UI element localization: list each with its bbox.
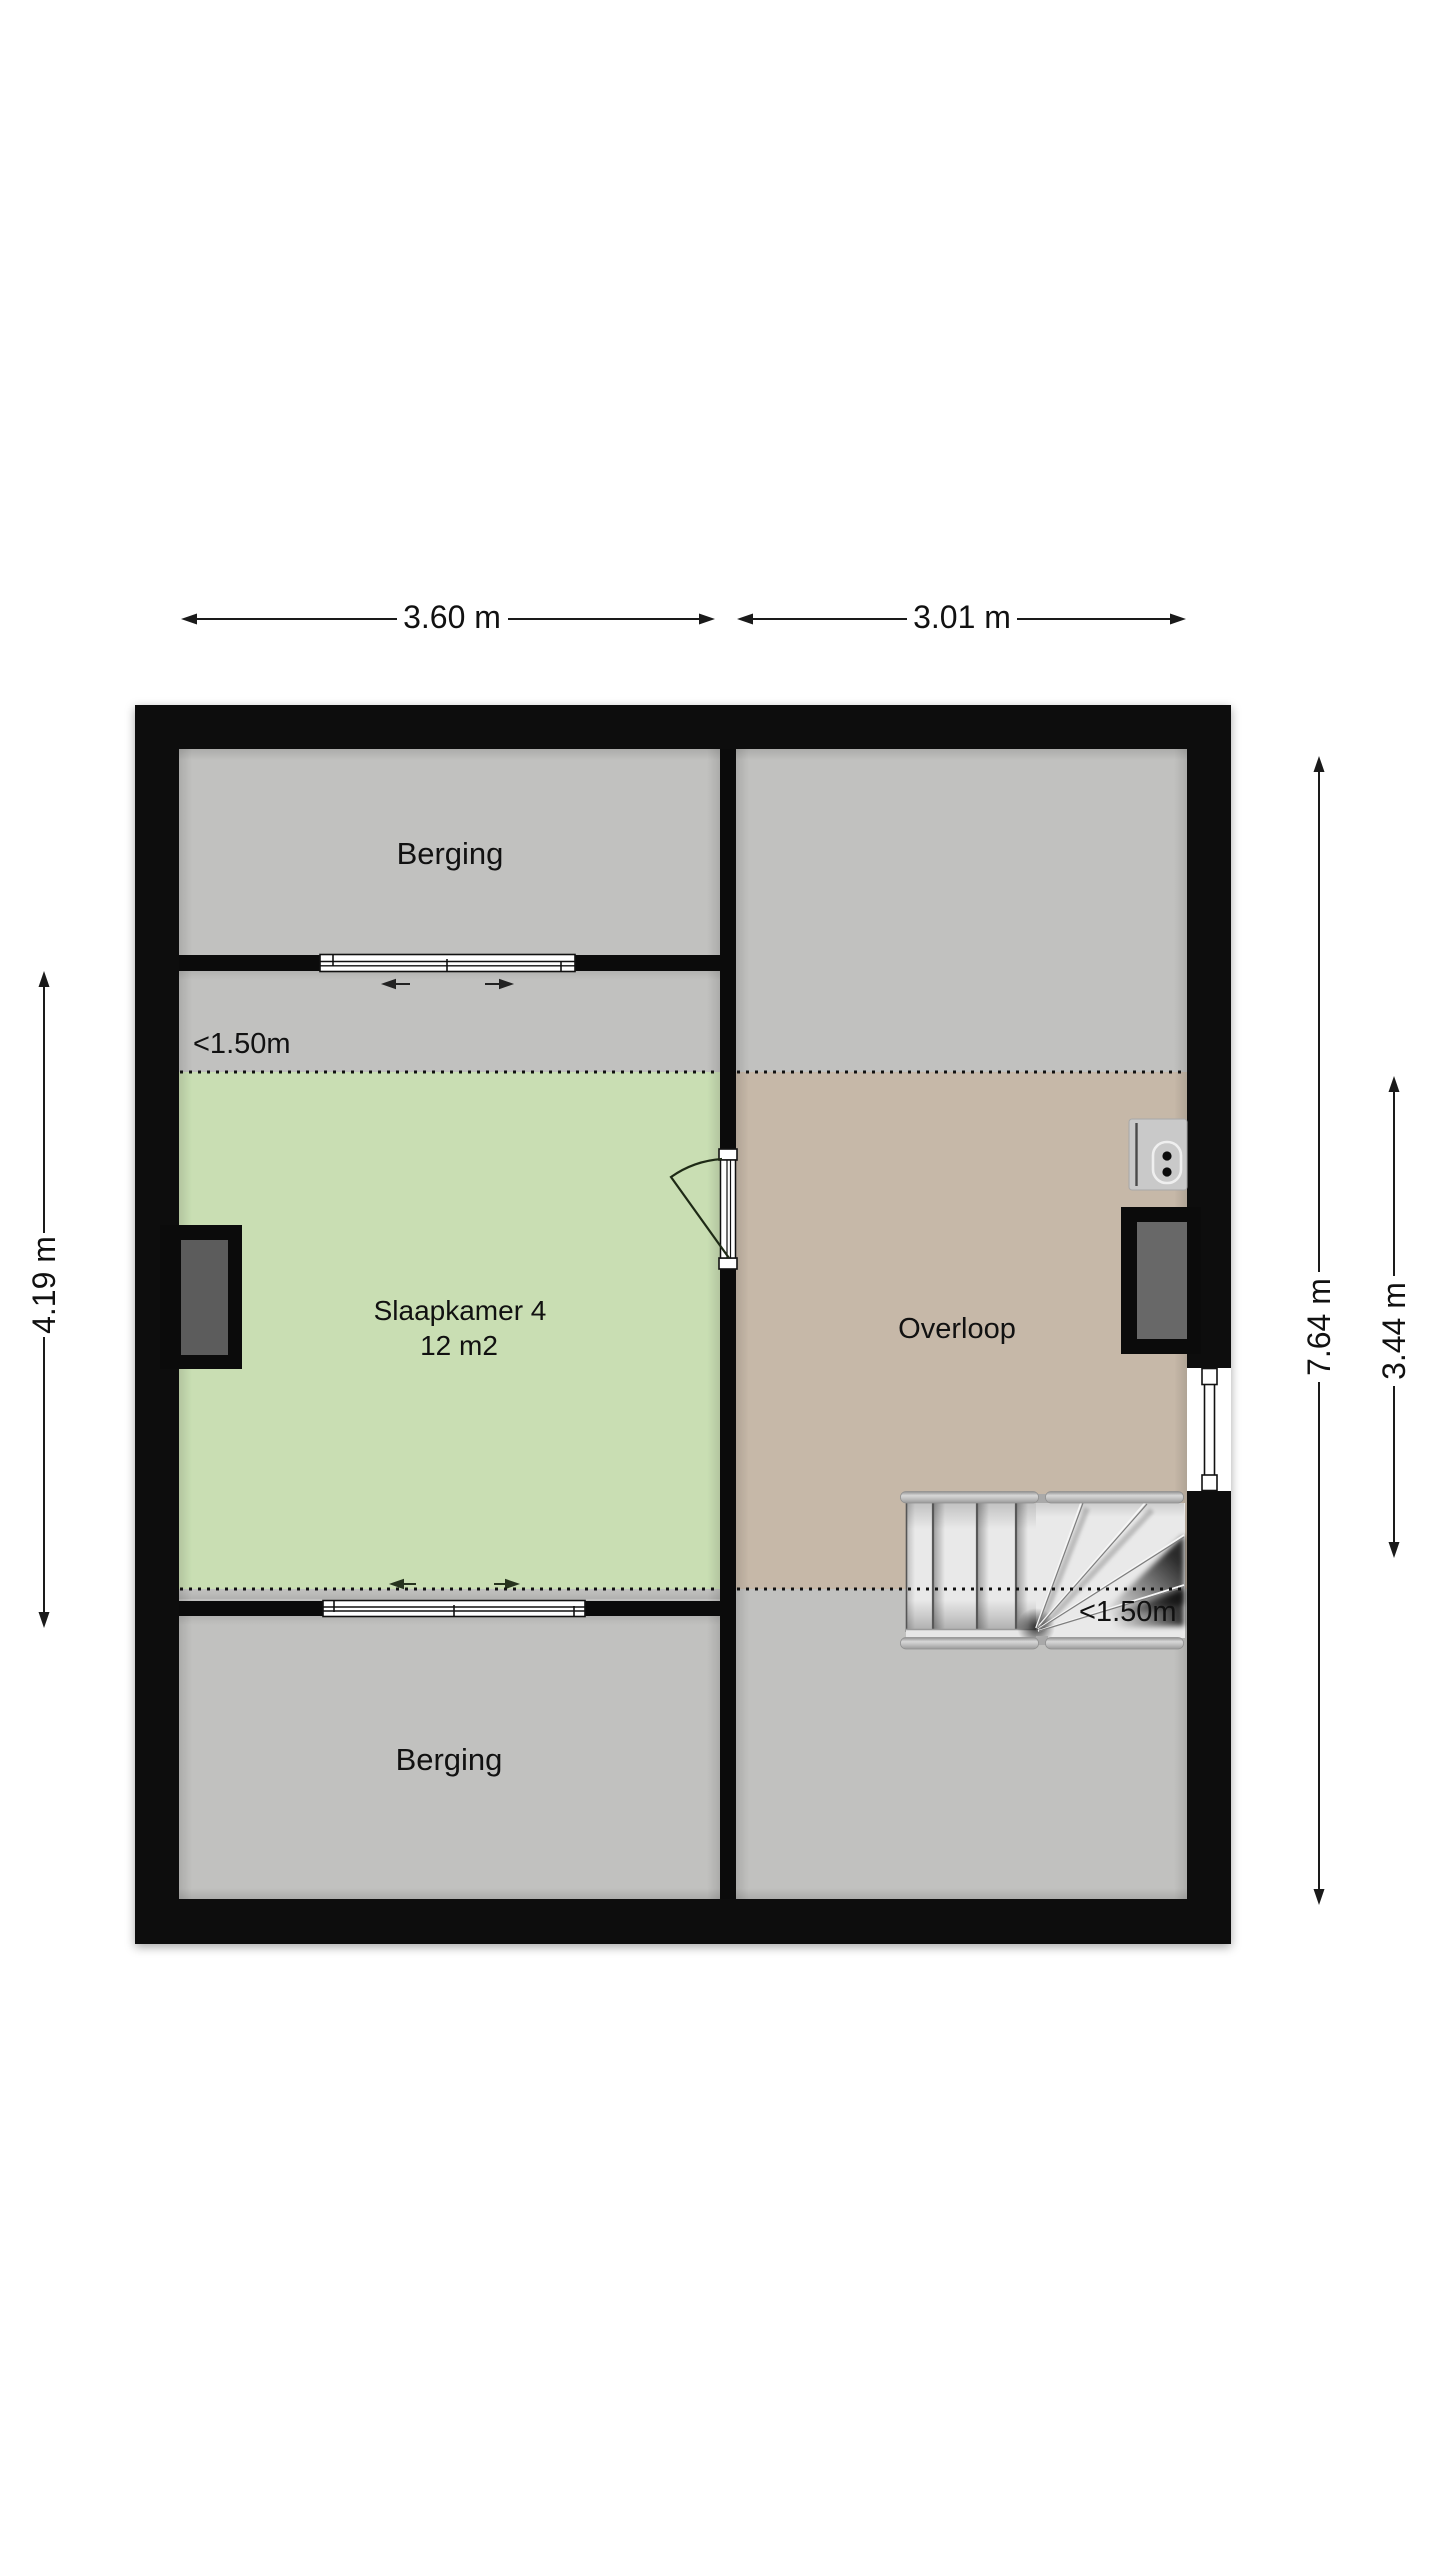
- svg-text:12 m2: 12 m2: [420, 1330, 498, 1361]
- svg-text:4.19 m: 4.19 m: [26, 1236, 62, 1334]
- svg-text:7.64 m: 7.64 m: [1301, 1278, 1337, 1376]
- svg-text:<1.50m: <1.50m: [193, 1028, 291, 1060]
- svg-text:Berging: Berging: [396, 1742, 503, 1777]
- svg-text:3.01 m: 3.01 m: [913, 599, 1011, 635]
- svg-text:Overloop: Overloop: [898, 1313, 1016, 1345]
- svg-text:<1.50m: <1.50m: [1079, 1596, 1177, 1628]
- svg-text:Berging: Berging: [397, 836, 504, 871]
- svg-text:Slaapkamer 4: Slaapkamer 4: [374, 1295, 547, 1326]
- svg-text:3.44 m: 3.44 m: [1376, 1282, 1412, 1380]
- svg-text:3.60 m: 3.60 m: [403, 599, 501, 635]
